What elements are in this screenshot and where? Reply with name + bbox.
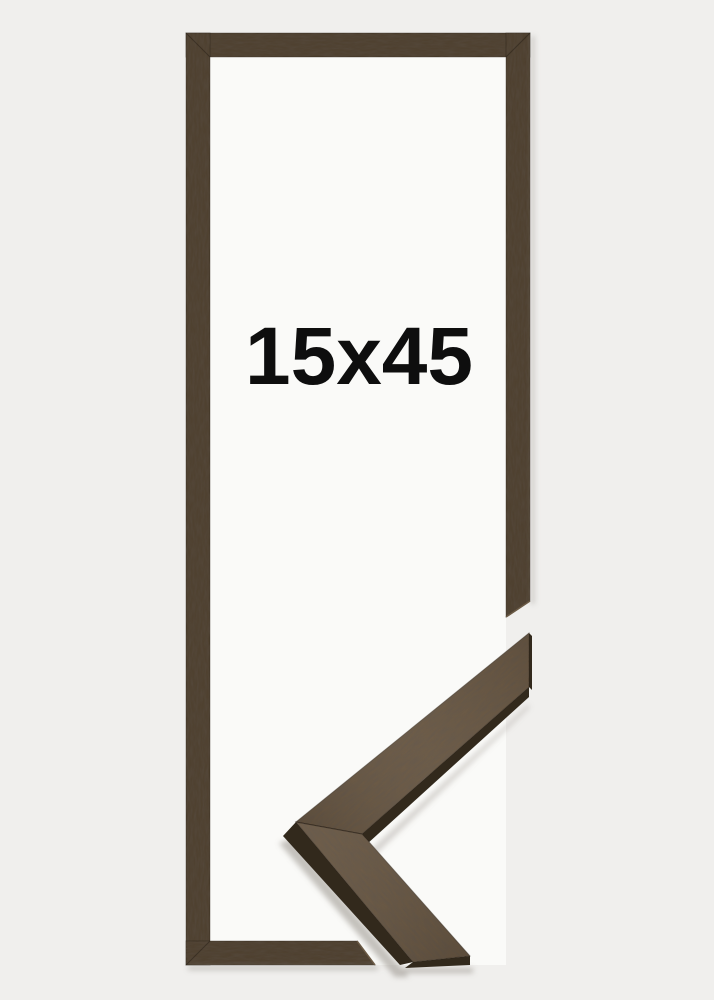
size-label: 15x45 (245, 316, 473, 398)
product-image: 15x45 (0, 0, 714, 1000)
frame-top-bar (180, 28, 536, 62)
frame-illustration (0, 0, 714, 1000)
frame-bottom-bar (180, 936, 386, 970)
frame-left-bar (184, 29, 210, 969)
frame-right-bar (506, 30, 532, 630)
